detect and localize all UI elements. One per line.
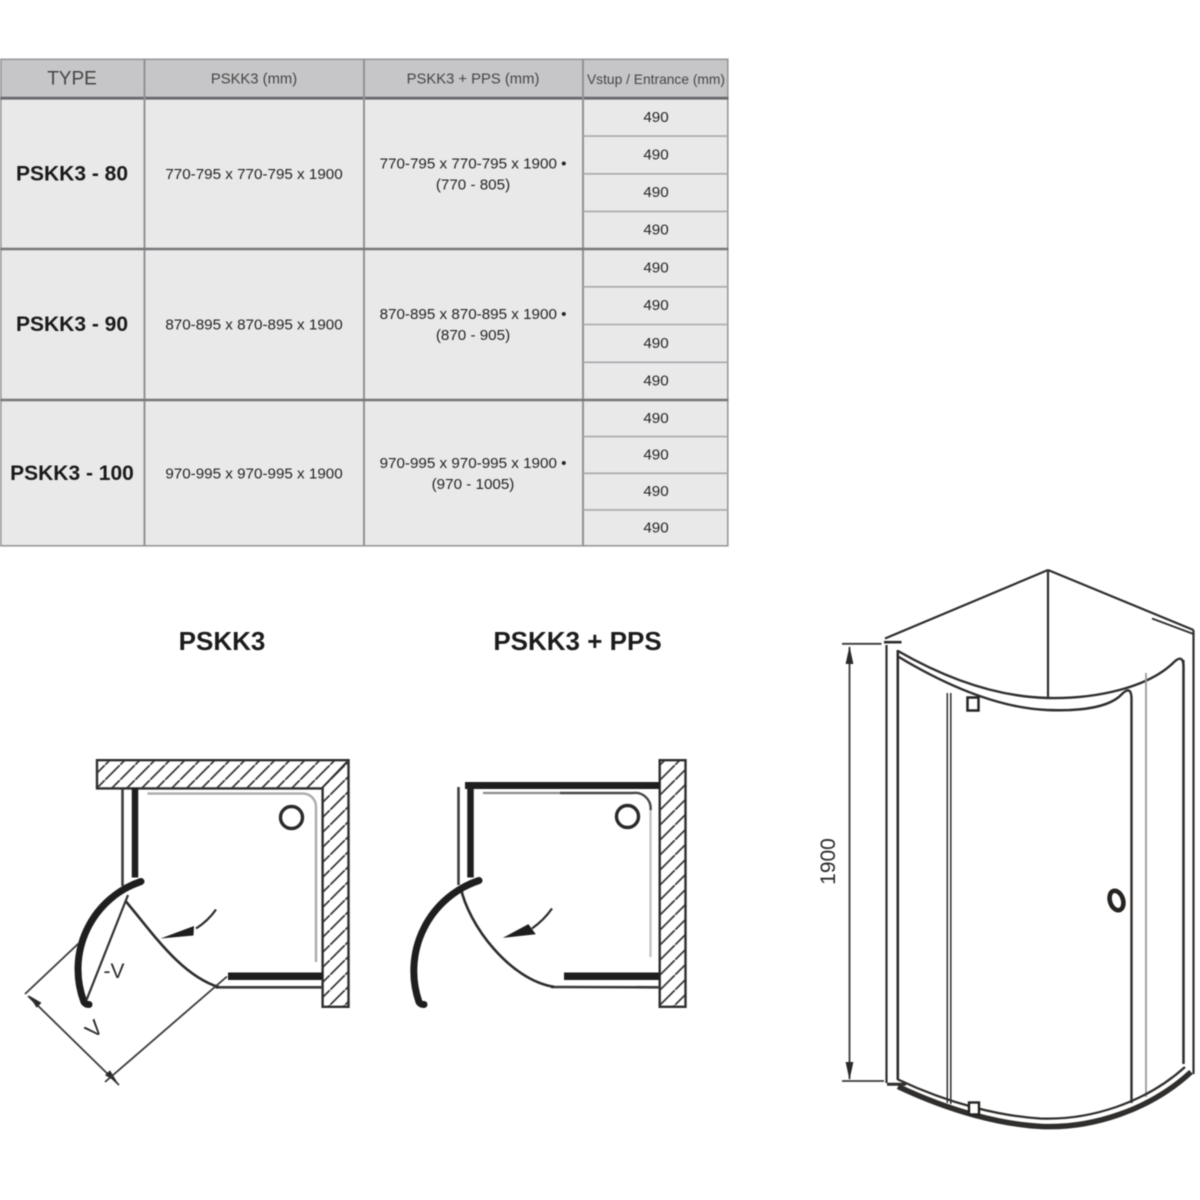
svg-text:490: 490 bbox=[643, 520, 668, 537]
svg-text:490: 490 bbox=[643, 109, 668, 126]
svg-text:-V: -V bbox=[104, 960, 125, 983]
svg-text:970-995 x 970-995 x 1900: 970-995 x 970-995 x 1900 bbox=[165, 465, 342, 482]
svg-text:Vstup / Entrance (mm): Vstup / Entrance (mm) bbox=[587, 72, 725, 87]
svg-text:PSKK3 (mm): PSKK3 (mm) bbox=[211, 72, 297, 88]
svg-text:1900: 1900 bbox=[817, 838, 840, 885]
svg-text:TYPE: TYPE bbox=[47, 69, 97, 90]
svg-text:PSKK3 - 100: PSKK3 - 100 bbox=[10, 462, 134, 485]
svg-text:490: 490 bbox=[643, 373, 668, 390]
svg-text:490: 490 bbox=[643, 222, 668, 239]
svg-text:PSKK3 - 80: PSKK3 - 80 bbox=[16, 163, 128, 186]
svg-text:490: 490 bbox=[643, 446, 668, 463]
svg-text:PSKK3: PSKK3 bbox=[179, 626, 266, 656]
svg-text:770-795 x 770-795 x 1900 •: 770-795 x 770-795 x 1900 • bbox=[380, 156, 567, 173]
svg-text:PSKK3 - 90: PSKK3 - 90 bbox=[16, 313, 128, 336]
svg-text:V: V bbox=[80, 1015, 108, 1044]
svg-text:490: 490 bbox=[643, 297, 668, 314]
svg-text:PSKK3 + PPS (mm): PSKK3 + PPS (mm) bbox=[407, 72, 540, 88]
svg-text:490: 490 bbox=[643, 184, 668, 201]
svg-text:490: 490 bbox=[643, 335, 668, 352]
svg-text:(770 - 805): (770 - 805) bbox=[436, 177, 510, 194]
svg-text:(970 - 1005): (970 - 1005) bbox=[432, 476, 515, 493]
svg-text:490: 490 bbox=[643, 483, 668, 500]
svg-text:970-995 x 970-995 x 1900 •: 970-995 x 970-995 x 1900 • bbox=[380, 455, 567, 472]
svg-text:490: 490 bbox=[643, 260, 668, 277]
svg-text:490: 490 bbox=[643, 147, 668, 164]
svg-text:770-795 x 770-795 x 1900: 770-795 x 770-795 x 1900 bbox=[165, 166, 342, 183]
svg-text:490: 490 bbox=[643, 410, 668, 427]
svg-text:(870 - 905): (870 - 905) bbox=[436, 327, 510, 344]
svg-text:870-895 x 870-895 x 1900: 870-895 x 870-895 x 1900 bbox=[165, 317, 342, 334]
svg-text:PSKK3 + PPS: PSKK3 + PPS bbox=[493, 626, 661, 656]
svg-text:870-895 x 870-895 x 1900 •: 870-895 x 870-895 x 1900 • bbox=[380, 306, 567, 323]
